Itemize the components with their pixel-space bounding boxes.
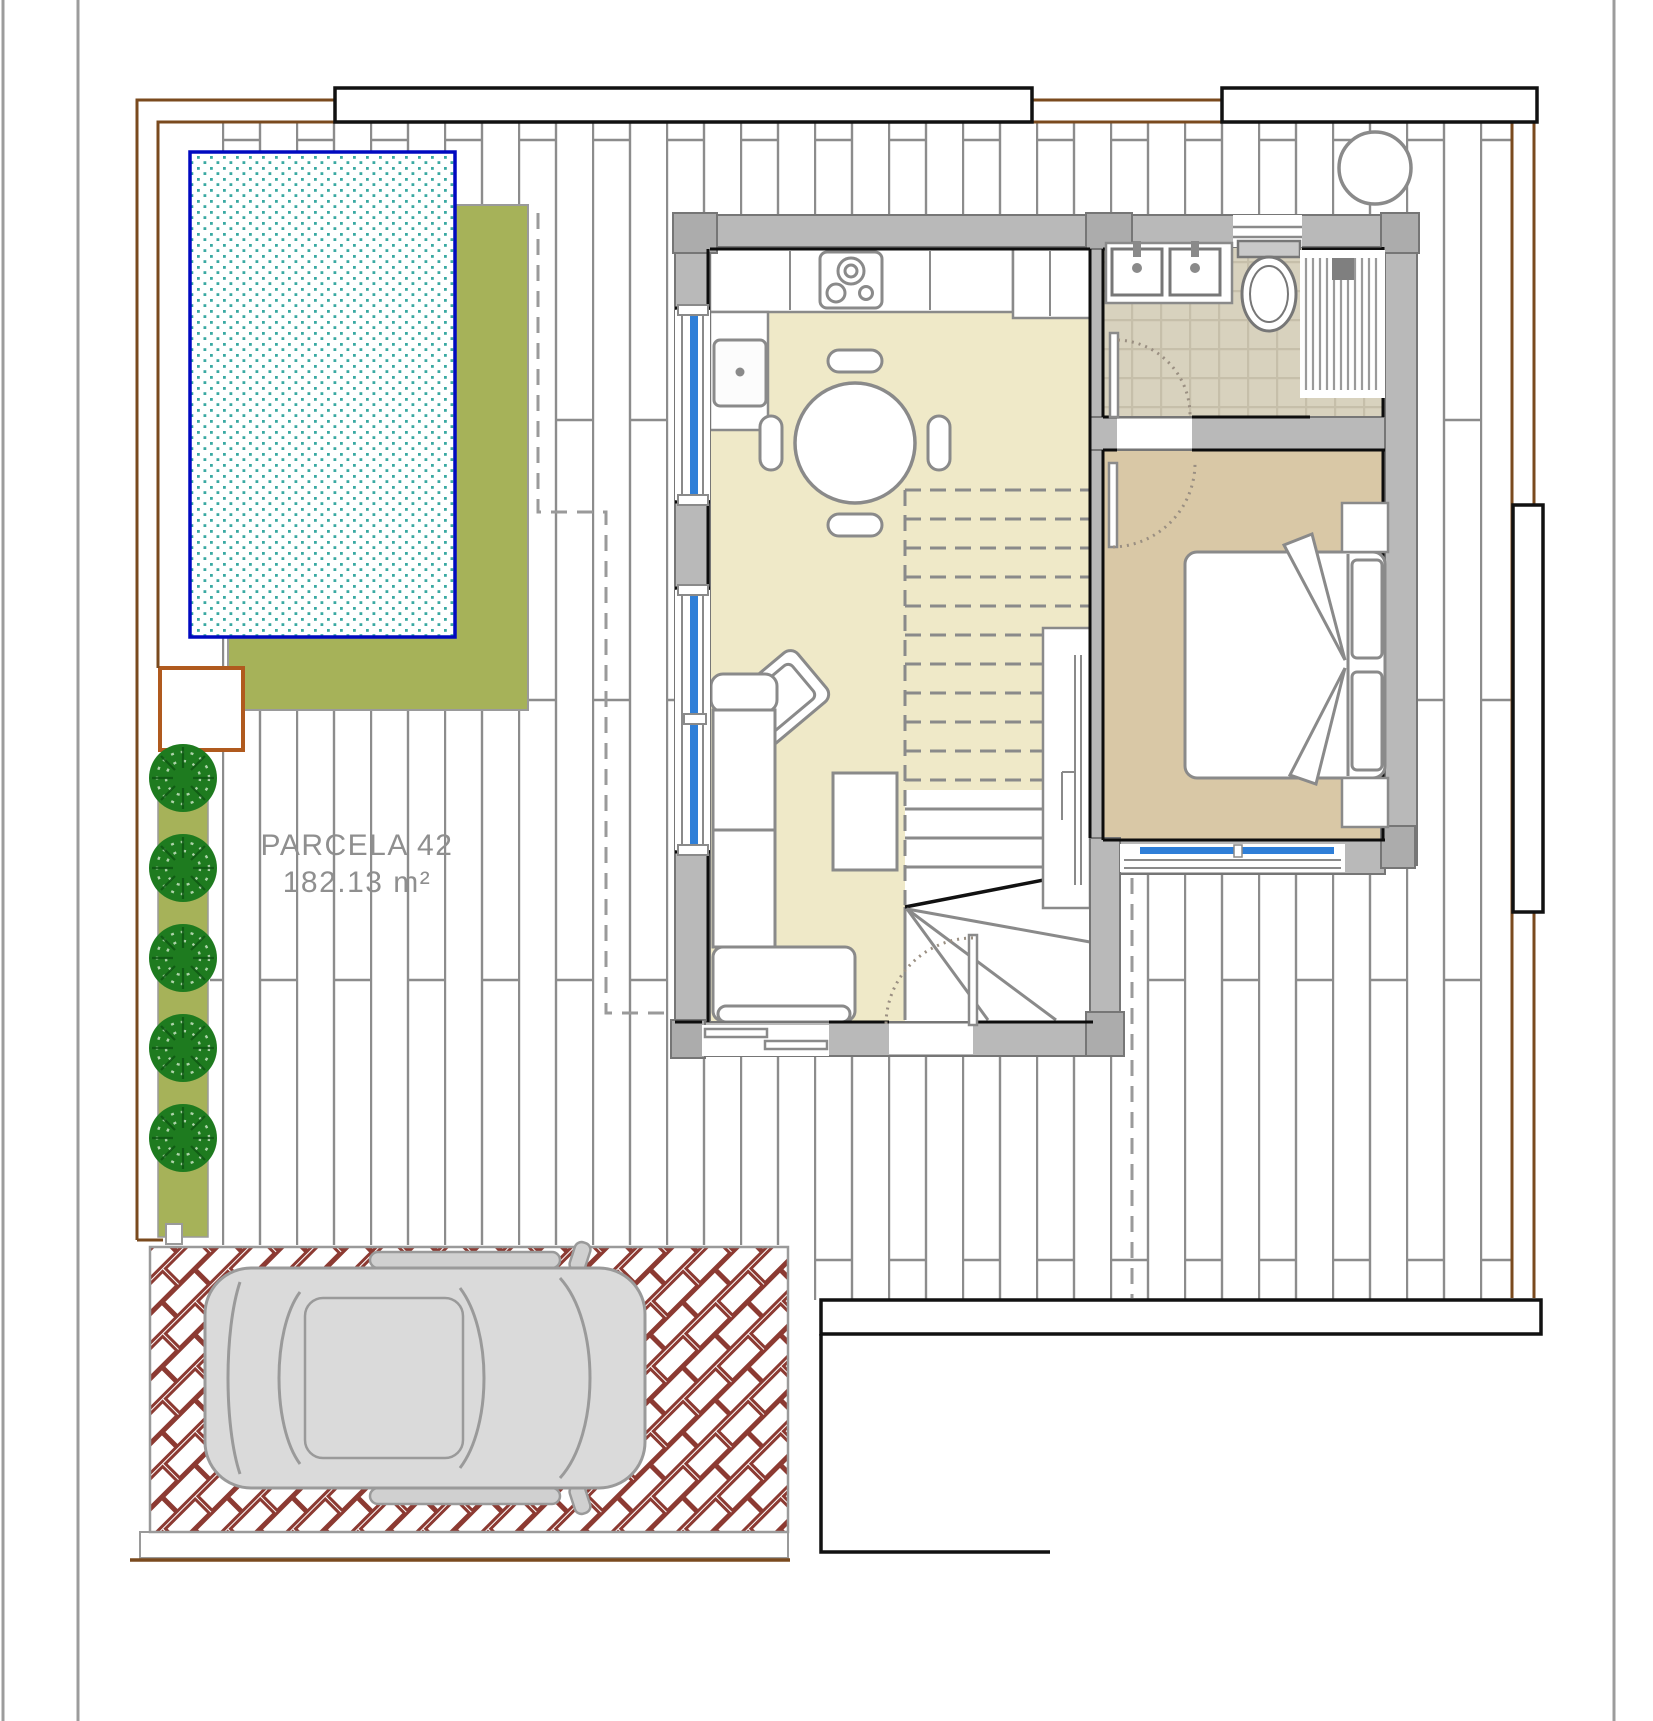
shower-drain-icon [1332, 258, 1354, 280]
dining-table [795, 383, 915, 503]
fence-right [1513, 505, 1543, 912]
car-body [205, 1268, 645, 1488]
tree-icon [149, 1104, 217, 1172]
nightstand [1342, 778, 1388, 827]
gate-box [160, 668, 243, 750]
tree-icon [149, 744, 217, 812]
wall-bedroom-west [1090, 450, 1103, 878]
window-south-slider [702, 1025, 829, 1056]
kitchen-sink-icon [714, 340, 766, 406]
bed [1185, 534, 1385, 784]
swimming-pool [190, 152, 455, 637]
cooktop-icon [820, 252, 882, 308]
window-bedroom-south [1120, 844, 1345, 872]
fence-south-right [821, 1300, 1541, 1334]
window-west-2 [675, 585, 710, 855]
planter-notch [166, 1224, 182, 1244]
coffee-table [833, 773, 897, 870]
floor-plan-sheet: PARCELA 42 182.13 m² [0, 0, 1653, 1721]
car [205, 1240, 645, 1515]
vanity-double-sink [1106, 241, 1232, 303]
wall-north [675, 215, 1417, 247]
tree-icon [149, 834, 217, 902]
fence-top-right [1222, 88, 1537, 122]
tree-icon [149, 1014, 217, 1082]
wall-kitchen-bath [1090, 247, 1103, 417]
terrace-round-planter [1339, 132, 1411, 204]
shower [1300, 250, 1385, 398]
stair-railing [1043, 628, 1090, 908]
sidewalk-strip [140, 1532, 788, 1558]
nightstand [1342, 503, 1388, 552]
fence-top-left [335, 88, 1032, 122]
parcel-area-text: 182.13 m² [283, 866, 432, 899]
window-west-1 [675, 305, 710, 505]
tree-icon [149, 924, 217, 992]
parcel-name-text: PARCELA 42 [261, 829, 454, 862]
toilet-icon [1238, 241, 1300, 331]
wall-east [1385, 240, 1417, 865]
